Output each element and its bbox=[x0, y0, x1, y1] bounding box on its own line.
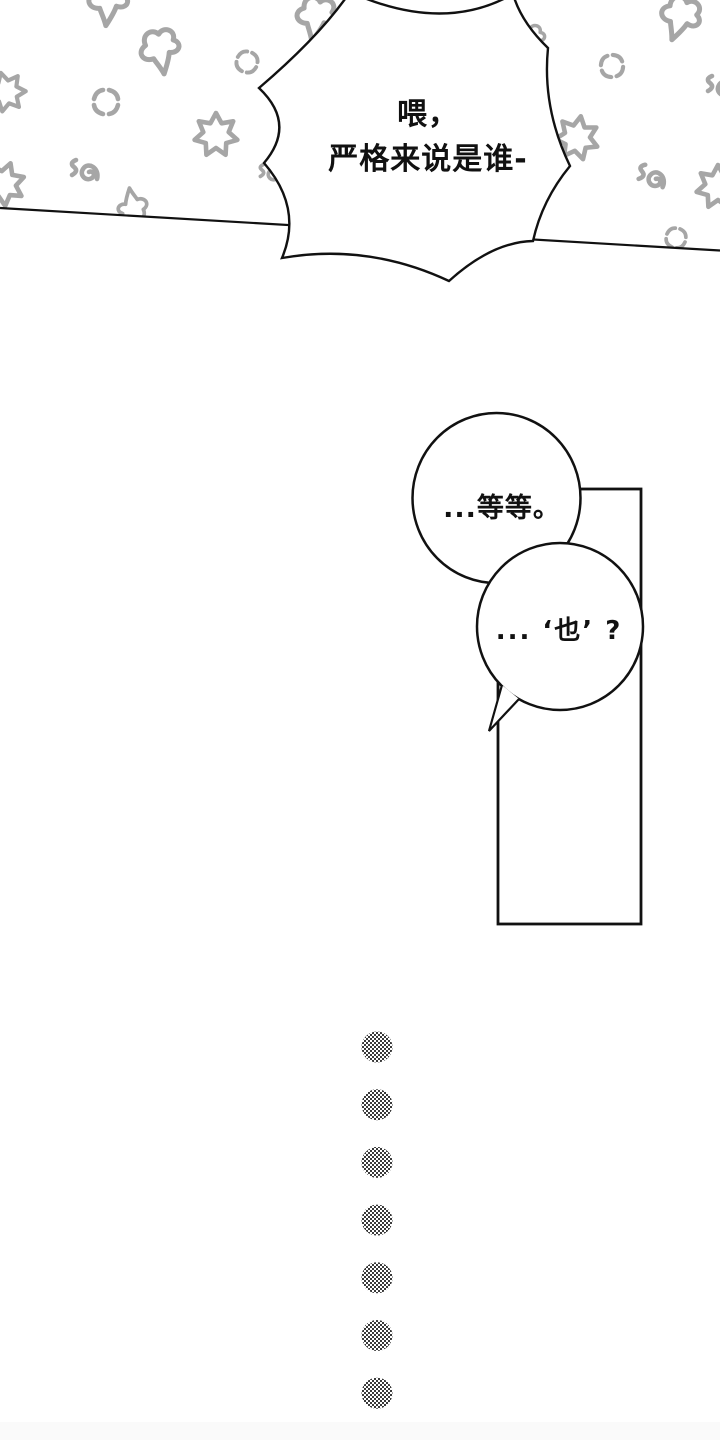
shout-bubble-text-line2: 严格来说是谁- bbox=[288, 137, 568, 182]
bottom-gap-band bbox=[0, 1422, 720, 1440]
shout-bubble-text: 喂， 严格来说是谁- bbox=[288, 92, 568, 182]
anger-mark-icon bbox=[235, 50, 260, 75]
ellipsis-dots-column bbox=[362, 1032, 393, 1409]
burst-star-icon bbox=[697, 165, 720, 207]
ellipsis-halftone-dot bbox=[362, 1378, 393, 1409]
anger-mark-icon bbox=[665, 227, 687, 249]
ellipsis-halftone-dot bbox=[362, 1320, 393, 1351]
ellipsis-halftone-dot bbox=[362, 1262, 393, 1293]
ellipsis-halftone-dot bbox=[362, 1032, 393, 1063]
speech-bubble-1-text: ...等等。 bbox=[392, 492, 612, 526]
swirl-icon bbox=[72, 160, 98, 179]
burst-star-icon bbox=[195, 113, 238, 155]
anger-mark-icon bbox=[94, 90, 118, 114]
burst-star-icon bbox=[0, 156, 31, 210]
puff-cloud-icon bbox=[139, 29, 181, 76]
comic-art-canvas bbox=[0, 0, 720, 1440]
puff-cloud-icon bbox=[653, 0, 706, 47]
ellipsis-halftone-dot bbox=[362, 1089, 393, 1120]
speech-bubble-2-text: ... ‘也’ ? bbox=[439, 613, 679, 649]
comic-page: 喂， 严格来说是谁- ...等等。 ... ‘也’ ? bbox=[0, 0, 720, 1440]
ellipsis-halftone-dot bbox=[362, 1147, 393, 1178]
ellipsis-halftone-dot bbox=[362, 1205, 393, 1236]
swirl-icon bbox=[638, 164, 666, 187]
burst-star-icon bbox=[0, 68, 29, 114]
swirl-icon bbox=[708, 76, 720, 95]
puff-cloud-icon bbox=[85, 0, 130, 29]
anger-mark-icon bbox=[599, 53, 624, 78]
shout-bubble-text-line1: 喂， bbox=[288, 92, 568, 137]
